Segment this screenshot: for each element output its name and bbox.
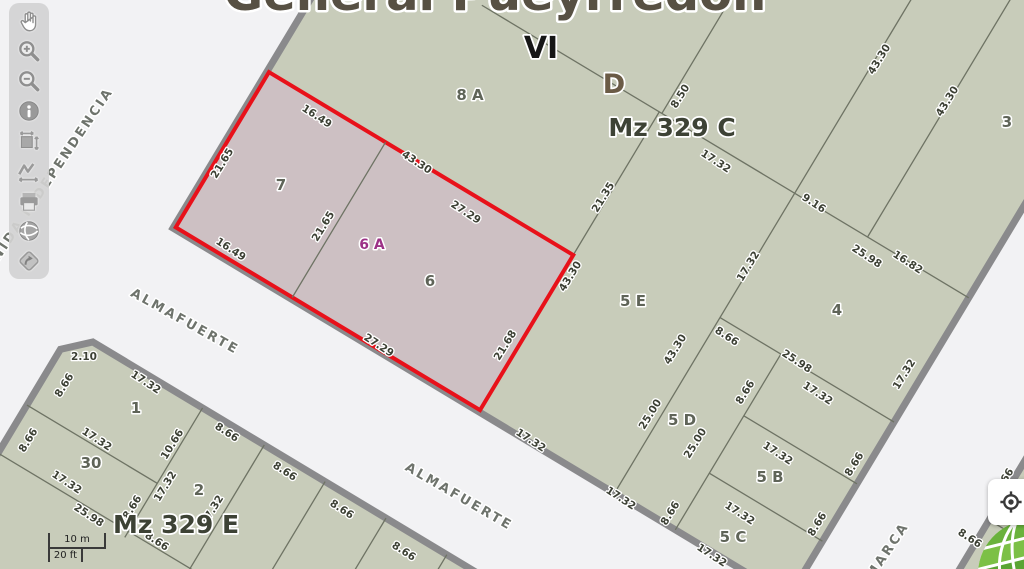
- lot-number-label: 5 B: [756, 468, 783, 486]
- scale-metric-label: 10 m: [64, 534, 90, 545]
- map-canvas[interactable]: 16.4943.3027.2921.6521.6516.4927.2921.68…: [0, 0, 1024, 569]
- lot-number-label: 7: [276, 176, 286, 194]
- scale-imperial-label: 20 ft: [54, 550, 77, 561]
- street-name-label: ALMAFUERTE: [402, 460, 515, 534]
- lot-number-label: 2: [194, 481, 204, 499]
- print-icon: [16, 188, 42, 214]
- zoom-in-icon: [16, 38, 42, 64]
- pan-icon: [16, 8, 42, 34]
- map-title: General Pueyrredón: [224, 0, 767, 22]
- info-icon: [16, 98, 42, 124]
- zone-label: D: [603, 69, 625, 100]
- lot-number-label: 3: [1002, 113, 1012, 131]
- tool-measure-distance-button[interactable]: [12, 156, 46, 186]
- tool-zoom-out-button[interactable]: [12, 66, 46, 96]
- street-name-label: ALMAFUERTE: [128, 286, 242, 358]
- locate-me-button[interactable]: [988, 479, 1024, 525]
- tool-share-button[interactable]: [12, 246, 46, 276]
- share-icon: [16, 248, 42, 274]
- tool-earth-button[interactable]: [12, 216, 46, 246]
- lot-number-label: 5 D: [668, 411, 696, 429]
- zone-label: Mz 329 C: [608, 113, 735, 142]
- scale-imperial: 20 ft: [48, 547, 83, 562]
- measure-area-icon: [16, 128, 42, 154]
- selected-parcel-label: 6 A: [359, 237, 385, 253]
- crosshair-icon: [998, 489, 1024, 515]
- lot-number-label: 4: [832, 301, 842, 319]
- lot-number-label: 5 E: [620, 292, 646, 310]
- lot-number-label: 30: [81, 454, 102, 472]
- earth-icon: [16, 218, 42, 244]
- map-toolbar: [9, 3, 49, 279]
- tool-zoom-in-button[interactable]: [12, 36, 46, 66]
- zone-label: VI: [524, 31, 558, 66]
- lot-number-label: 6: [425, 272, 435, 290]
- tool-info-button[interactable]: [12, 96, 46, 126]
- lot-number-label: 8 A: [456, 86, 484, 104]
- tool-pan-button[interactable]: [12, 6, 46, 36]
- tool-print-button[interactable]: [12, 186, 46, 216]
- zone-label: Mz 329 E: [113, 510, 239, 539]
- map-viewer: 16.4943.3027.2921.6521.6516.4927.2921.68…: [0, 0, 1024, 569]
- zoom-out-icon: [16, 68, 42, 94]
- measure-distance-icon: [16, 158, 42, 184]
- scale-line: 10 m 20 ft: [48, 533, 106, 562]
- lot-number-label: 5 C: [720, 528, 747, 546]
- street-name-label: CATAMARCA: [838, 520, 913, 569]
- tool-measure-area-button[interactable]: [12, 126, 46, 156]
- dimension-label: 2.10: [71, 351, 97, 363]
- lot-number-label: 1: [131, 399, 141, 417]
